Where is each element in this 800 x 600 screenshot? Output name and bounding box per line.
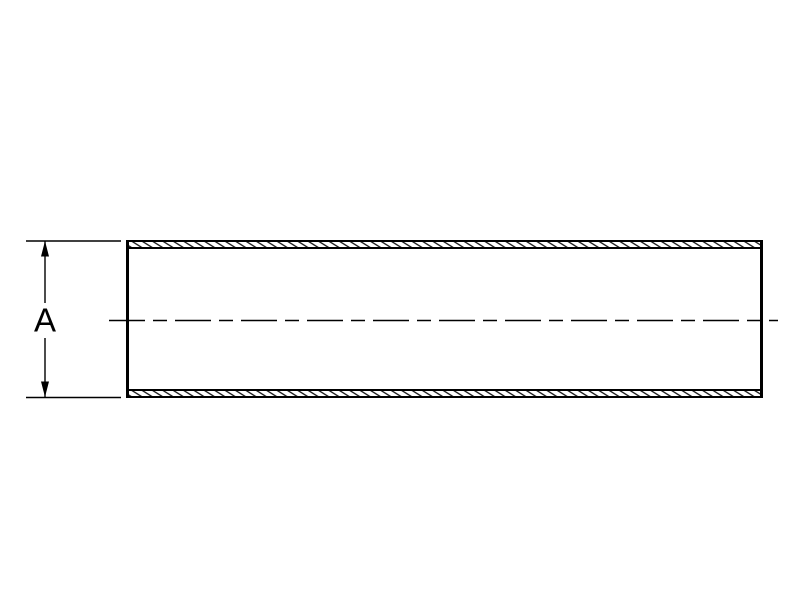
tube-bottom-wall [127,390,762,397]
drawing-canvas: A [0,0,800,600]
dimension-label: A [34,302,56,339]
arrowhead-down-icon [41,382,49,398]
tube-top-wall [127,241,762,248]
arrowhead-up-icon [41,241,49,257]
stroked-geometry [26,240,778,398]
tube-section-drawing: A [0,0,800,600]
